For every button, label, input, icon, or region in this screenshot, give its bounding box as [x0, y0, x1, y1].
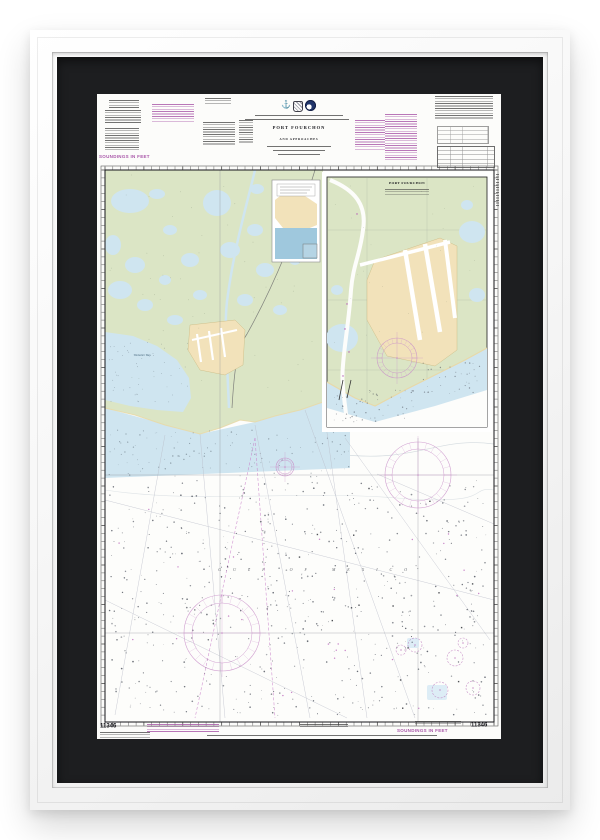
land-area: [105, 170, 323, 434]
nearshore-shallows: [105, 402, 350, 478]
note-block: [205, 98, 231, 104]
picture-frame: ⚓ PORT FOURCHON AND APPROACHES SOUNDINGS…: [30, 30, 570, 810]
datum-line: [278, 154, 320, 156]
note-bottom-line: [207, 735, 437, 737]
map-neatline: [105, 170, 494, 722]
highway-line: [232, 170, 315, 408]
timbalier-bay-water: [105, 332, 191, 412]
scale-line: [273, 150, 325, 152]
crest-icon: [293, 101, 303, 112]
note-block: [239, 120, 253, 144]
port-fourchon-area: [188, 320, 245, 375]
beach-line: [105, 402, 323, 434]
note-bottom: [300, 724, 348, 728]
sounding-dots: [109, 342, 487, 716]
nautical-chart-map: [97, 94, 501, 739]
anchorage-patch: [407, 638, 419, 648]
bay-label: Timbalier Bay: [107, 354, 177, 357]
outer-neatline: [101, 166, 498, 726]
noaa-logo-icon: [305, 100, 316, 111]
inset-scale-lines: [385, 189, 429, 195]
projection-line: [267, 146, 331, 148]
anchorage-circles: [396, 638, 480, 698]
bayou-lafourche-channel: [226, 170, 255, 408]
agency-line: [245, 119, 349, 121]
port-slips: [192, 328, 237, 362]
soundings-note-bottom-right: SOUNDINGS IN FEET: [397, 728, 448, 733]
note-block: [109, 100, 139, 108]
anchor-icon: ⚓: [281, 101, 291, 109]
graticule-lines: [105, 170, 494, 722]
source-diagram-inset: [272, 180, 320, 262]
note-block: [435, 96, 493, 120]
framed-nautical-chart-photo: ⚓ PORT FOURCHON AND APPROACHES SOUNDINGS…: [0, 0, 600, 840]
note-block: [105, 128, 139, 150]
caution-note-bottom: [147, 724, 219, 733]
chart-number-bottom-right: 11346: [471, 721, 487, 728]
note-bottom-small: [415, 721, 461, 724]
black-mat: ⚓ PORT FOURCHON AND APPROACHES SOUNDINGS…: [57, 57, 543, 783]
caution-note-block: [385, 114, 417, 160]
edition-note: [100, 732, 150, 738]
chart-paper: ⚓ PORT FOURCHON AND APPROACHES SOUNDINGS…: [97, 94, 501, 739]
soundings-note-top-left: SOUNDINGS IN FEET: [99, 154, 150, 159]
inset-title: PORT FOURCHON: [367, 181, 447, 185]
port-fourchon-inset: [322, 172, 492, 432]
edge-note-vertical: [496, 174, 499, 206]
agency-line: [255, 115, 343, 117]
caution-note-block: [355, 120, 385, 150]
chart-number-bottom-left: 11346: [100, 722, 116, 729]
note-block: [105, 110, 141, 124]
note-block: [203, 122, 235, 146]
gulf-of-mexico-label: GULF OF MEXICO: [218, 568, 380, 572]
marsh-symbols: [110, 175, 313, 392]
border-ticks: [102, 167, 498, 726]
gulf-water: [105, 170, 494, 722]
anchorage-patch: [427, 685, 447, 700]
logo-table: [437, 146, 495, 168]
chart-subtitle: AND APPROACHES: [198, 138, 400, 141]
lease-block-lines: [105, 404, 494, 718]
chart-title: PORT FOURCHON: [198, 125, 400, 130]
fairway-lines: [195, 438, 275, 718]
compass-rose: [178, 332, 457, 677]
tide-table: [437, 126, 489, 144]
marsh-lakes: [105, 184, 317, 336]
caution-note-block: [152, 104, 194, 122]
